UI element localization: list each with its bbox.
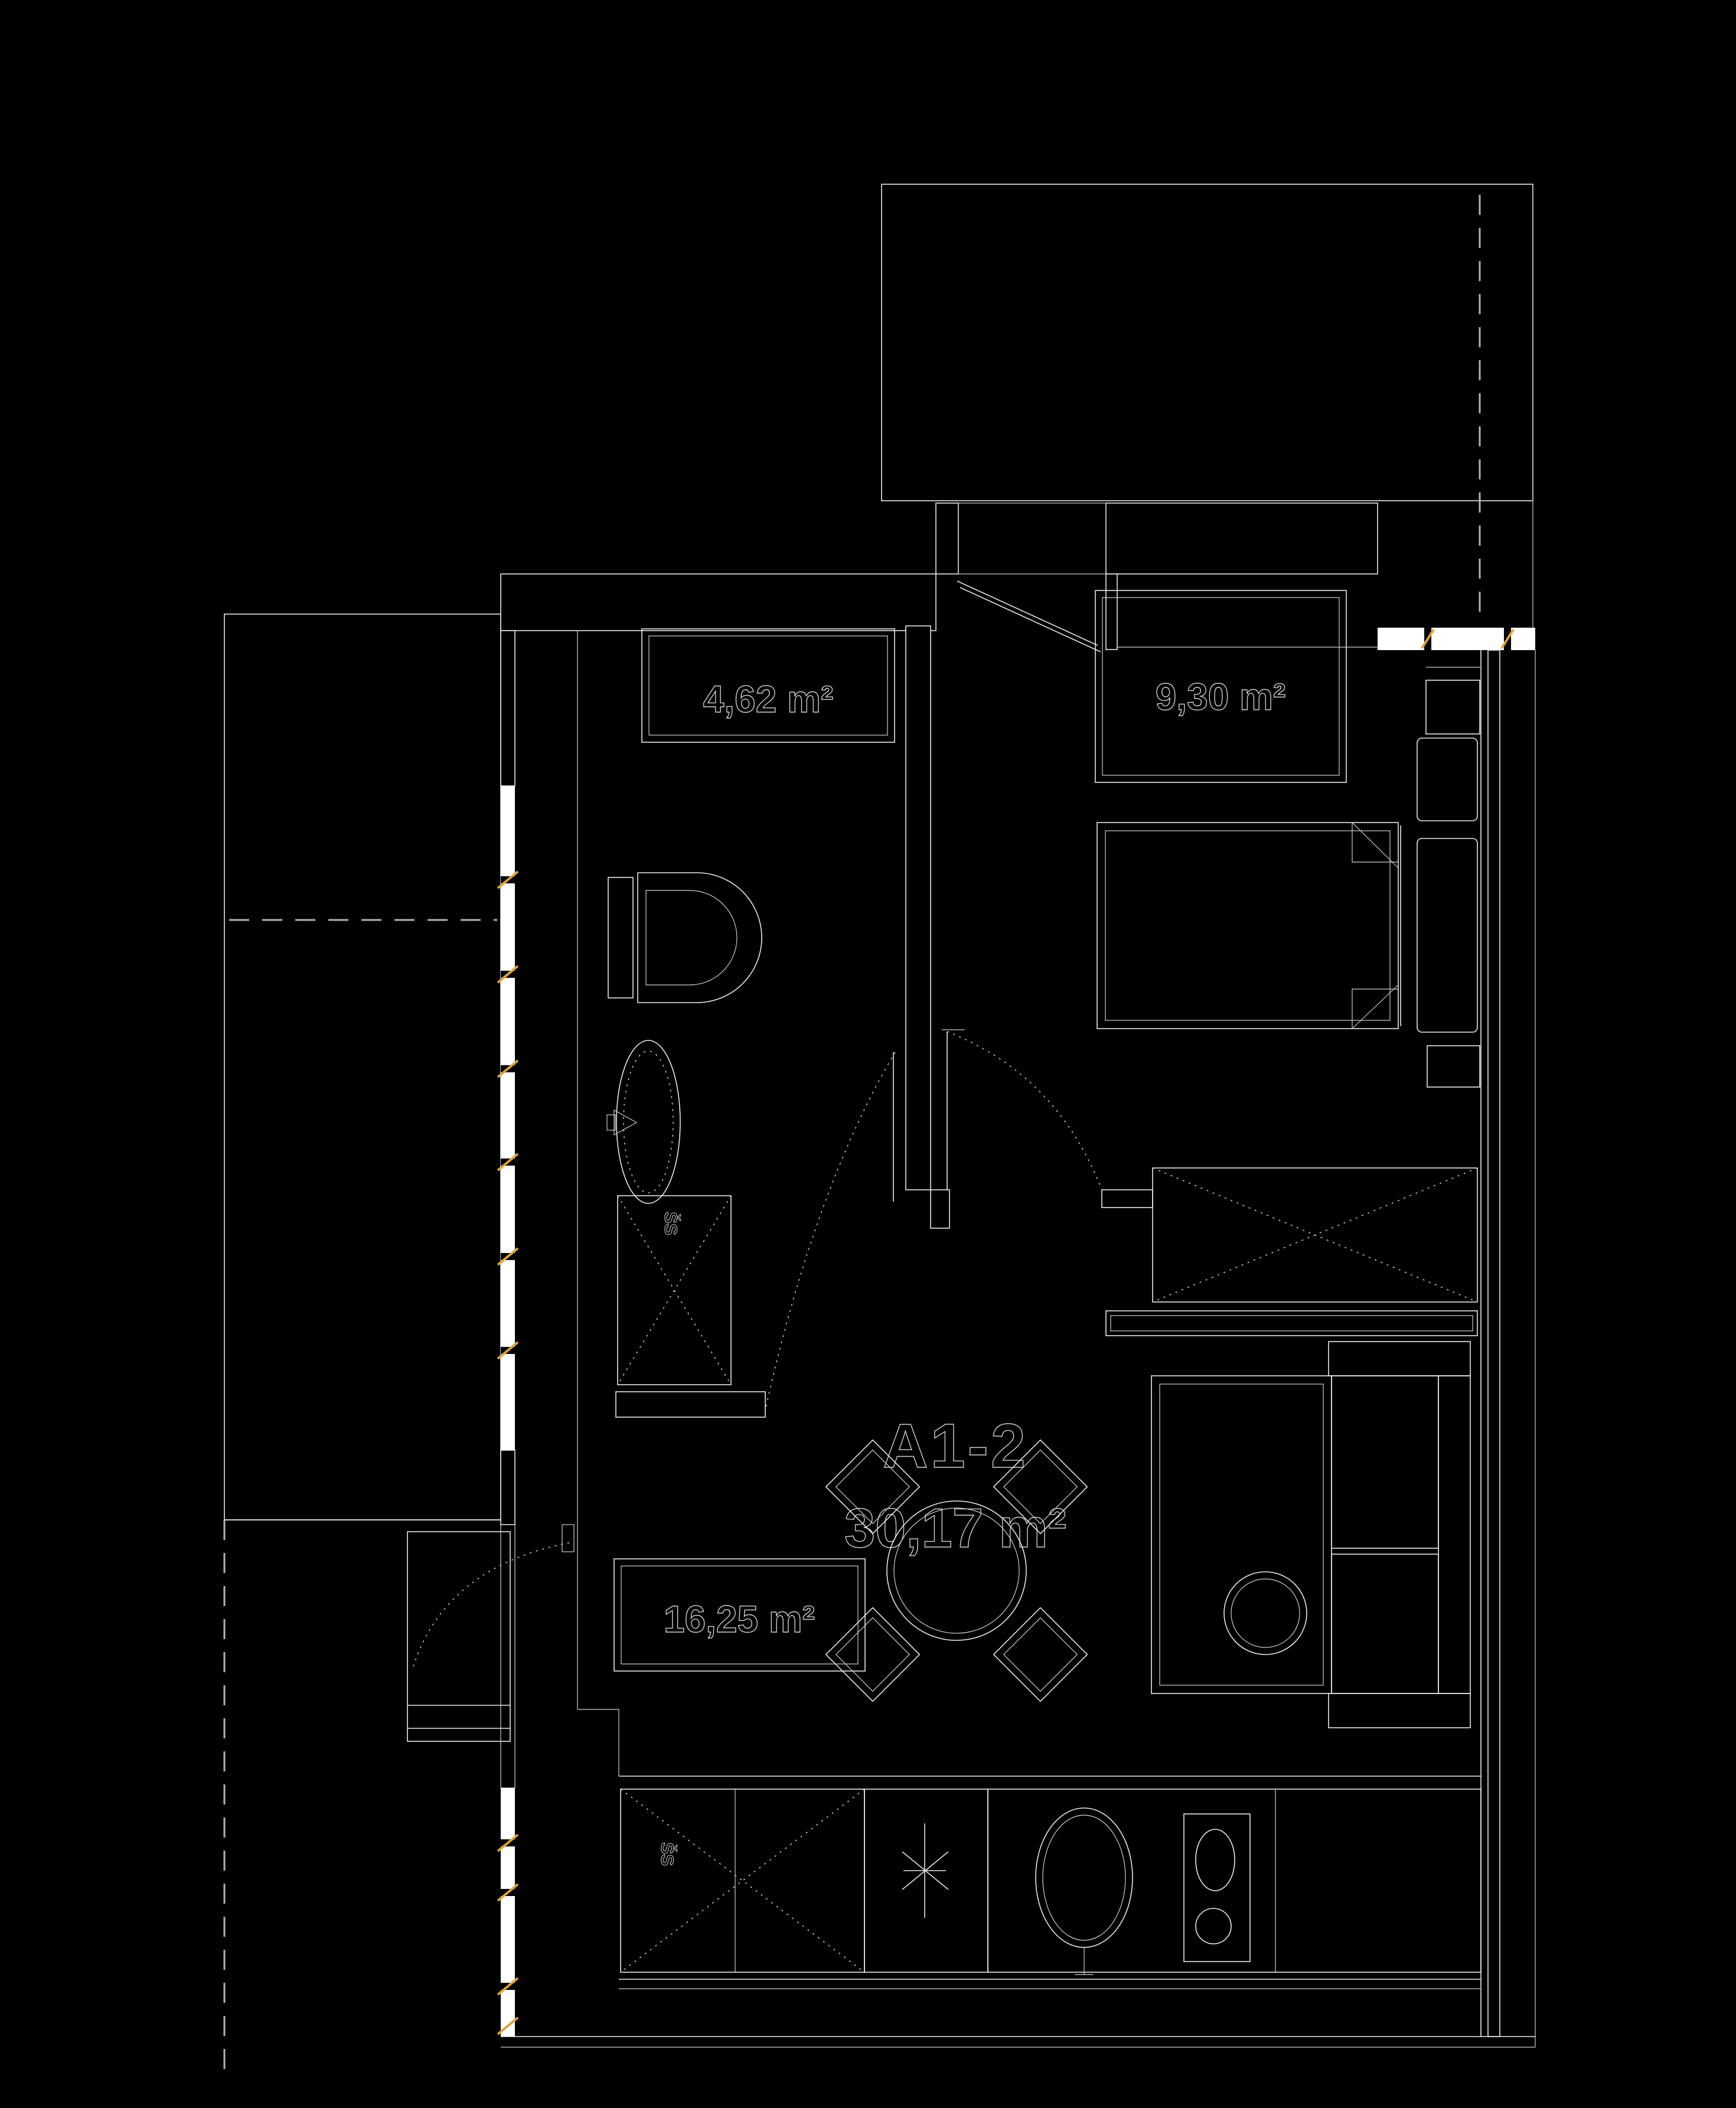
sofa-icon [1151,1342,1470,1728]
living-area-text: 16,25 m² [664,1598,815,1640]
terrace-door-jamb [562,1525,574,1552]
hall-door-swing-arc [947,1032,1102,1190]
bathroom-south-wall [616,1392,765,1417]
bathroom: 4,62 m² ŠS [607,629,895,1410]
hall-door [942,1030,1102,1190]
interior-walls [616,626,1153,1417]
sofa-cushion [1332,1554,1438,1693]
sofa-armrest-top [1329,1342,1470,1376]
side-table-icon [1224,1572,1307,1655]
terrace-door-swing-arc [413,1542,572,1666]
entry-door-jamb-left [936,503,958,574]
shower-icon: ŠS [618,1196,731,1385]
north-wall-step [1106,574,1117,650]
stair-treads [407,1532,510,1741]
terrace-stairs [224,1520,574,1741]
appliance-asterisk-icon [902,1823,948,1918]
sofa-cushion [1332,1376,1438,1548]
left-terrace-decking [224,614,501,1520]
kitchen-sink-icon [1036,1808,1133,1975]
terrace-door-opening [501,1525,515,1788]
unit-area-text: 30,17 m² [844,1497,1066,1559]
living-area-label: 16,25 m² [614,1559,865,1671]
floor-plan: 4,62 m² ŠS [0,0,1736,2108]
left-terrace [224,614,501,1520]
hall-south-wall [1102,1190,1153,1208]
bathroom-wall-foot [931,1190,949,1228]
pillow [1417,838,1477,1032]
shower-mark-text: ŠS [661,1212,681,1235]
window-sill [501,1788,515,2037]
toilet-icon [608,873,762,1003]
north-wall-bathroom [501,574,936,631]
nightstand-bottom [1427,1046,1480,1087]
exterior-walls [498,184,1535,2047]
sofa-armrest-bottom [1329,1693,1470,1728]
bedroom: 9,30 m² [1095,590,1480,1336]
kitchen-closet-mark-text: ŠS [657,1842,677,1866]
bathroom-area-text: 4,62 m² [703,678,834,720]
bedroom-window [1378,628,1535,650]
nightstand-top [1426,680,1480,734]
bathroom-window [498,786,518,1450]
sofa-backrest [1438,1376,1470,1693]
dishwasher-compartment [864,1789,988,1972]
living-window [498,1788,518,2037]
washbasin-icon [607,1040,680,1203]
bedroom-area-label: 9,30 m² [1095,590,1346,782]
north-wall-bedroom-bay [1106,503,1378,574]
unit-id-text: A1-2 [883,1411,1028,1481]
west-wall-mid-pier [501,1450,515,1525]
entry-threshold [958,503,1106,574]
east-wall [1488,650,1500,2037]
sofa-chaise [1151,1376,1332,1693]
entry-door-leaf [957,581,1101,652]
bathroom-door [765,1052,895,1410]
bedroom-area-text: 9,30 m² [1156,676,1286,718]
stove-icon [1184,1814,1250,1962]
floor-plan-canvas: 4,62 m² ŠS [0,0,1736,2108]
west-wall-upper-pier [501,631,515,786]
wardrobe-icon [1106,1168,1477,1336]
balcony-door-niche [577,1709,619,1776]
top-terrace-decking [882,184,1533,501]
worktop-compartment [988,1789,1481,1972]
bathroom-east-wall [906,626,931,1190]
bathroom-area-label: 4,62 m² [642,629,895,742]
bathroom-door-swing-arc [765,1052,895,1410]
pillow [1417,738,1477,821]
kitchen-counter: ŠS [619,1776,1481,1989]
